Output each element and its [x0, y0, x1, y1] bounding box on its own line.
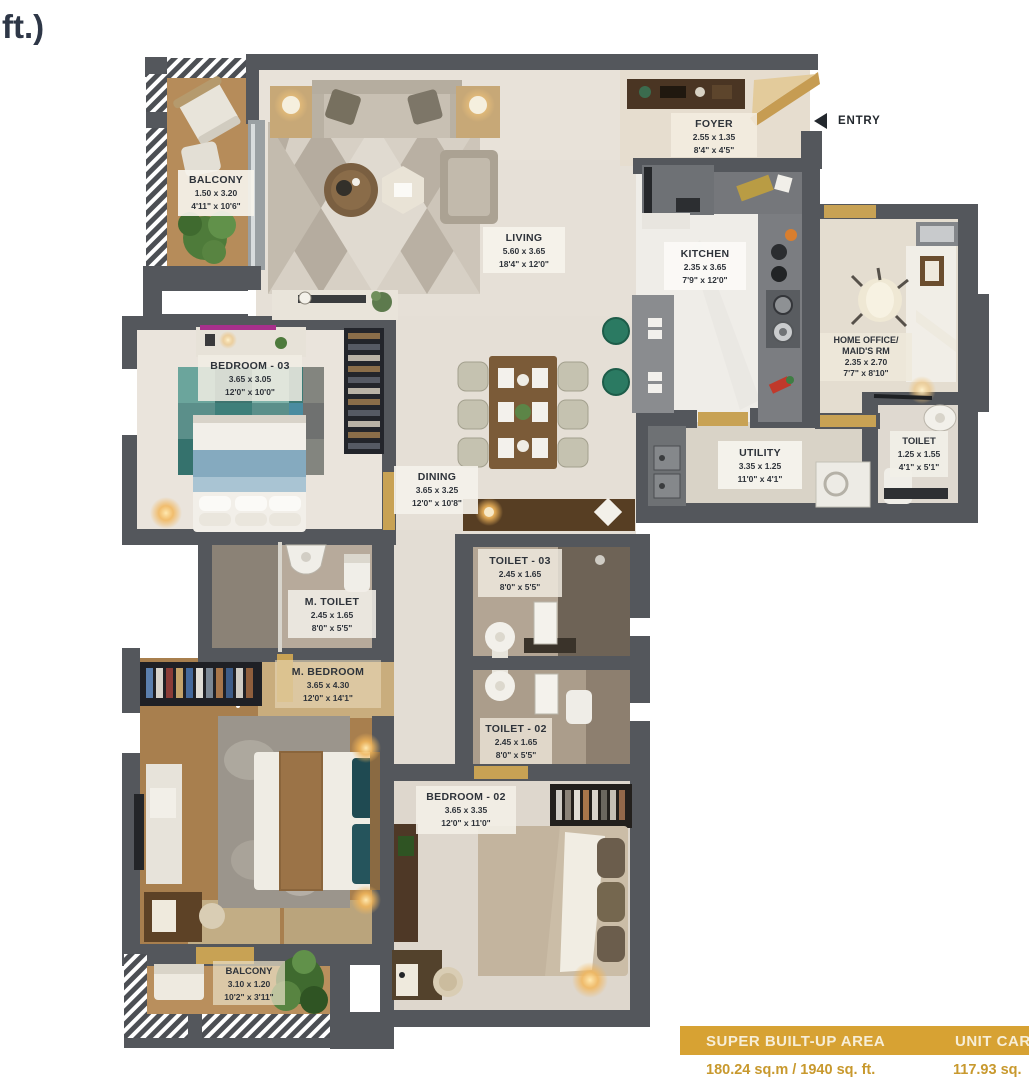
svg-text:2.45 x 1.65: 2.45 x 1.65 — [311, 610, 354, 620]
svg-text:LIVING: LIVING — [506, 232, 543, 244]
svg-text:3.35 x 1.25: 3.35 x 1.25 — [739, 461, 782, 471]
svg-text:8'4" x 4'5": 8'4" x 4'5" — [694, 145, 734, 155]
svg-text:8'0" x 5'5": 8'0" x 5'5" — [500, 582, 540, 592]
svg-text:12'0" x 14'1": 12'0" x 14'1" — [303, 693, 353, 703]
svg-text:SUPER BUILT-UP AREA: SUPER BUILT-UP AREA — [706, 1033, 885, 1050]
svg-text:HOME OFFICE/: HOME OFFICE/ — [834, 335, 899, 345]
svg-text:5.60 x 3.65: 5.60 x 3.65 — [503, 246, 546, 256]
svg-text:3.65 x 4.30: 3.65 x 4.30 — [307, 680, 350, 690]
svg-text:12'0" x 11'0": 12'0" x 11'0" — [441, 818, 490, 828]
svg-text:M. TOILET: M. TOILET — [305, 596, 360, 608]
svg-text:1.25 x 1.55: 1.25 x 1.55 — [898, 449, 941, 459]
svg-text:2.45 x 1.65: 2.45 x 1.65 — [499, 569, 542, 579]
svg-text:18'4" x 12'0": 18'4" x 12'0" — [499, 259, 549, 269]
svg-text:BALCONY: BALCONY — [226, 966, 274, 977]
svg-text:8'0" x 5'5": 8'0" x 5'5" — [312, 623, 352, 633]
svg-text:7'7" x 8'10": 7'7" x 8'10" — [843, 368, 888, 378]
svg-text:ENTRY: ENTRY — [838, 115, 881, 127]
svg-text:FOYER: FOYER — [695, 118, 733, 130]
svg-text:180.24 sq.m / 1940 sq. ft.: 180.24 sq.m / 1940 sq. ft. — [706, 1062, 875, 1078]
svg-text:11'0" x 4'1": 11'0" x 4'1" — [738, 474, 783, 484]
svg-text:UNIT CAR: UNIT CAR — [955, 1033, 1029, 1050]
svg-text:TOILET - 03: TOILET - 03 — [489, 555, 550, 567]
svg-text:1.50 x 3.20: 1.50 x 3.20 — [195, 188, 238, 198]
svg-text:4'1" x 5'1": 4'1" x 5'1" — [899, 462, 939, 472]
svg-text:2.45 x 1.65: 2.45 x 1.65 — [495, 737, 538, 747]
svg-text:DINING: DINING — [418, 471, 457, 483]
svg-text:2.35 x 2.70: 2.35 x 2.70 — [845, 357, 888, 367]
svg-text:8'0" x 5'5": 8'0" x 5'5" — [496, 750, 536, 760]
svg-text:10'2" x 3'11": 10'2" x 3'11" — [224, 992, 273, 1002]
svg-text:BEDROOM - 02: BEDROOM - 02 — [426, 791, 505, 803]
svg-text:BEDROOM - 03: BEDROOM - 03 — [210, 360, 289, 372]
svg-text:M. BEDROOM: M. BEDROOM — [292, 666, 364, 678]
svg-text:3.10 x 1.20: 3.10 x 1.20 — [228, 979, 271, 989]
svg-text:12'0" x 10'8": 12'0" x 10'8" — [412, 498, 462, 508]
svg-text:12'0" x 10'0": 12'0" x 10'0" — [225, 387, 275, 397]
svg-text:3.65 x 3.25: 3.65 x 3.25 — [416, 485, 459, 495]
svg-text:UTILITY: UTILITY — [739, 447, 781, 459]
svg-text:2.55 x 1.35: 2.55 x 1.35 — [693, 132, 736, 142]
svg-text:4'11" x 10'6": 4'11" x 10'6" — [191, 201, 240, 211]
svg-text:2.35 x 3.65: 2.35 x 3.65 — [684, 262, 727, 272]
svg-text:117.93 sq.: 117.93 sq. — [953, 1062, 1022, 1078]
svg-text:TOILET - 02: TOILET - 02 — [485, 723, 546, 735]
svg-text:MAID'S RM: MAID'S RM — [842, 346, 890, 356]
svg-text:3.65 x 3.35: 3.65 x 3.35 — [445, 805, 488, 815]
svg-text:KITCHEN: KITCHEN — [681, 248, 730, 260]
svg-text:3.65 x 3.05: 3.65 x 3.05 — [229, 374, 272, 384]
svg-text:ft.): ft.) — [2, 8, 44, 45]
svg-text:BALCONY: BALCONY — [189, 174, 243, 186]
svg-text:7'9" x 12'0": 7'9" x 12'0" — [682, 275, 727, 285]
svg-text:TOILET: TOILET — [902, 436, 936, 447]
